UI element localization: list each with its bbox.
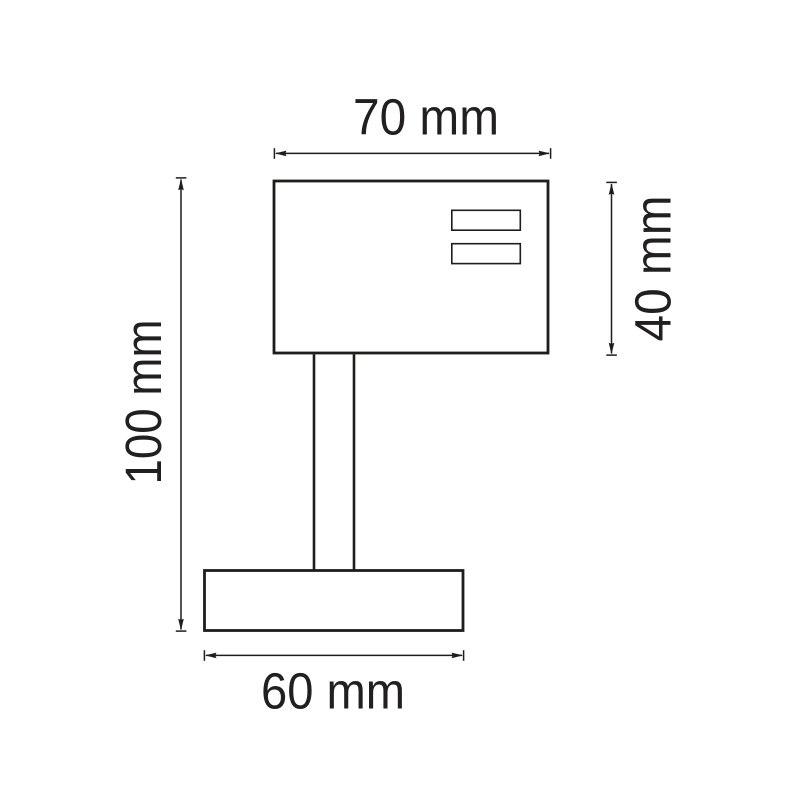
svg-text:60 mm: 60 mm	[261, 663, 405, 720]
svg-text:40 mm: 40 mm	[625, 196, 682, 342]
svg-text:70 mm: 70 mm	[353, 89, 499, 146]
svg-text:100 mm: 100 mm	[115, 320, 172, 485]
